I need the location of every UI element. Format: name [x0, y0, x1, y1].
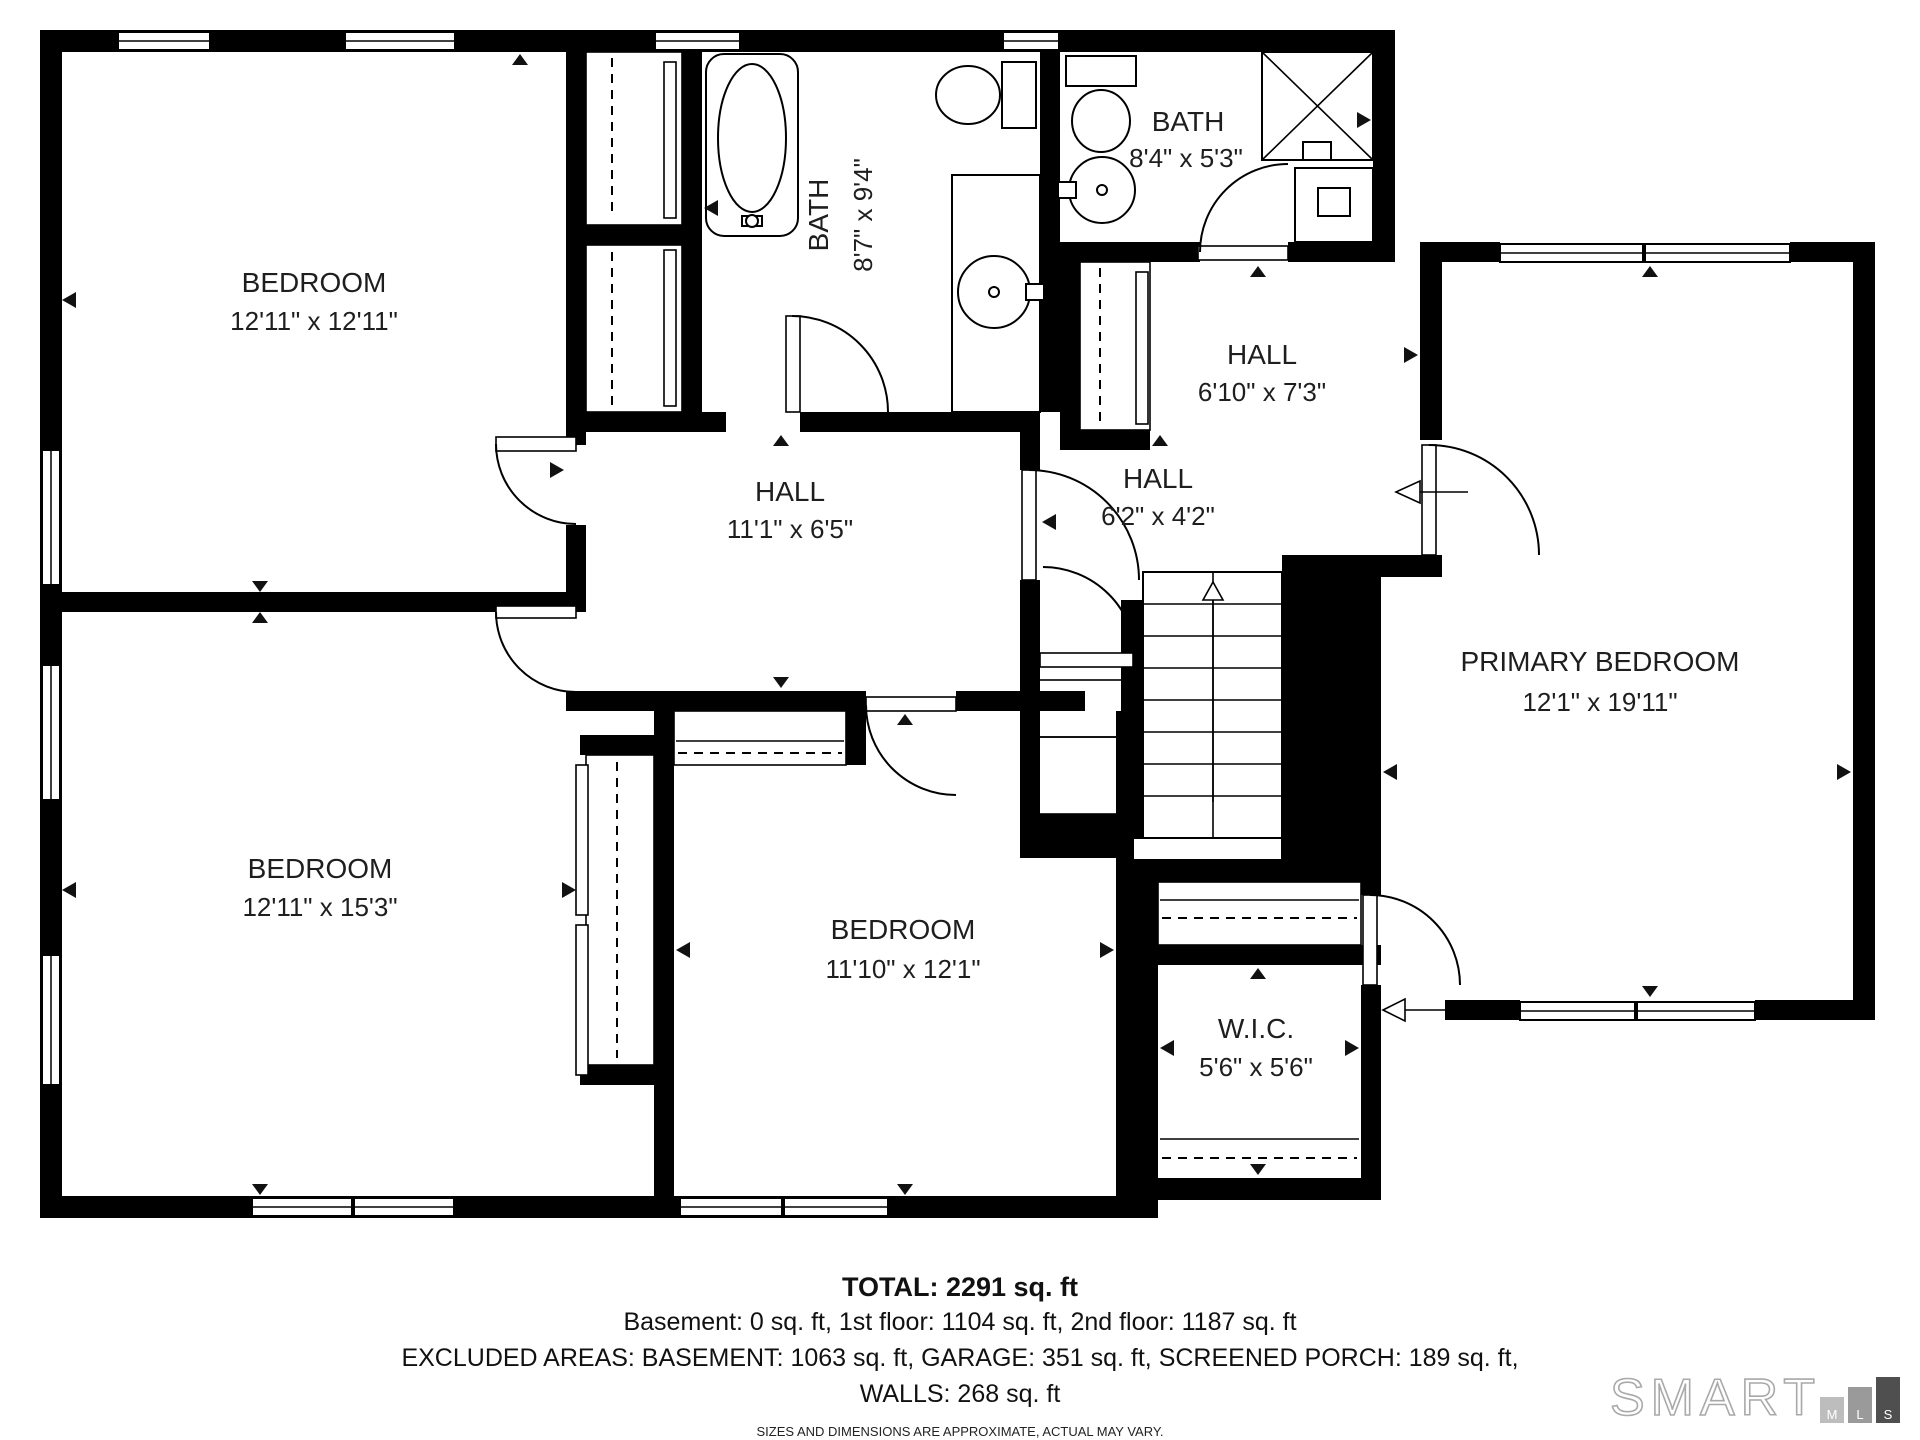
room-label: HALL: [1123, 463, 1193, 494]
door: [496, 606, 576, 692]
staircase: [1133, 572, 1282, 860]
vanity-sink: [952, 175, 1044, 412]
floor-plan-drawing: BEDROOM 12'11" x 12'11" BATH 8'7" x 9'4"…: [0, 0, 1920, 1440]
room-label: BEDROOM: [248, 853, 393, 884]
room-dims: 8'7" x 9'4": [848, 158, 878, 272]
logo-bar-l: L: [1856, 1407, 1863, 1422]
window: [42, 955, 60, 1085]
smartmls-logo-bars: M L S: [1820, 1377, 1900, 1423]
room-label: HALL: [755, 476, 825, 507]
window: [655, 32, 740, 50]
door: [1198, 164, 1288, 260]
window: [680, 1198, 782, 1216]
vanity: [1295, 168, 1373, 242]
window: [42, 665, 60, 800]
door: [866, 697, 956, 795]
room-label: BEDROOM: [242, 267, 387, 298]
window: [252, 1198, 352, 1216]
window: [42, 450, 60, 585]
window: [1645, 244, 1790, 262]
logo-bar-m: M: [1827, 1407, 1838, 1422]
room-label: PRIMARY BEDROOM: [1460, 646, 1739, 677]
room-dims: 12'11" x 15'3": [242, 892, 397, 922]
toilet: [1066, 56, 1136, 152]
bathtub: [706, 54, 798, 236]
window: [118, 32, 210, 50]
room-label: HALL: [1227, 339, 1297, 370]
closet: [586, 52, 682, 225]
windows-layer: [42, 32, 1790, 1216]
room-label: BEDROOM: [831, 914, 976, 945]
toilet: [936, 62, 1036, 128]
closet: [1158, 882, 1361, 945]
window: [354, 1198, 454, 1216]
smartmls-logo-brand: SMART: [1610, 1369, 1821, 1427]
logo-bar-s: S: [1884, 1407, 1893, 1422]
window: [1520, 1002, 1635, 1020]
floor-plan-page: BEDROOM 12'11" x 12'11" BATH 8'7" x 9'4"…: [0, 0, 1920, 1440]
window: [345, 32, 455, 50]
door: [496, 437, 576, 524]
passage-arrow-icon: [1396, 481, 1420, 503]
door: [1363, 895, 1460, 985]
shower: [1262, 52, 1373, 160]
room-dims: 12'1" x 19'11": [1522, 687, 1677, 717]
room-label: BATH: [803, 179, 834, 252]
room-dims: 11'10" x 12'1": [825, 954, 980, 984]
floor-areas-text: Basement: 0 sq. ft, 1st floor: 1104 sq. …: [0, 1308, 1920, 1337]
room-dims: 6'10" x 7'3": [1198, 377, 1326, 407]
smartmls-logo: SMART M L S: [1604, 1363, 1904, 1432]
total-area-text: TOTAL: 2291 sq. ft: [0, 1272, 1920, 1303]
room-dims: 12'11" x 12'11": [230, 306, 398, 336]
closet: [576, 755, 654, 1075]
room-label: BATH: [1152, 106, 1225, 137]
pedestal-sink: [1058, 157, 1135, 223]
closet-shelf-wic: [1160, 1139, 1359, 1158]
door: [786, 316, 888, 412]
window: [784, 1198, 888, 1216]
closet: [674, 711, 846, 765]
room-dims: 11'1" x 6'5": [727, 514, 853, 544]
window: [1637, 1002, 1755, 1020]
room-label: W.I.C.: [1218, 1013, 1294, 1044]
closet: [586, 245, 682, 412]
window: [1003, 32, 1059, 50]
room-dims: 8'4" x 5'3": [1129, 143, 1243, 173]
room-dims: 6'2" x 4'2": [1101, 501, 1215, 531]
room-dims: 5'6" x 5'6": [1199, 1052, 1313, 1082]
door: [1422, 445, 1539, 555]
closet: [1080, 262, 1150, 430]
window: [1500, 244, 1643, 262]
passage-arrow-icon: [1383, 999, 1405, 1021]
